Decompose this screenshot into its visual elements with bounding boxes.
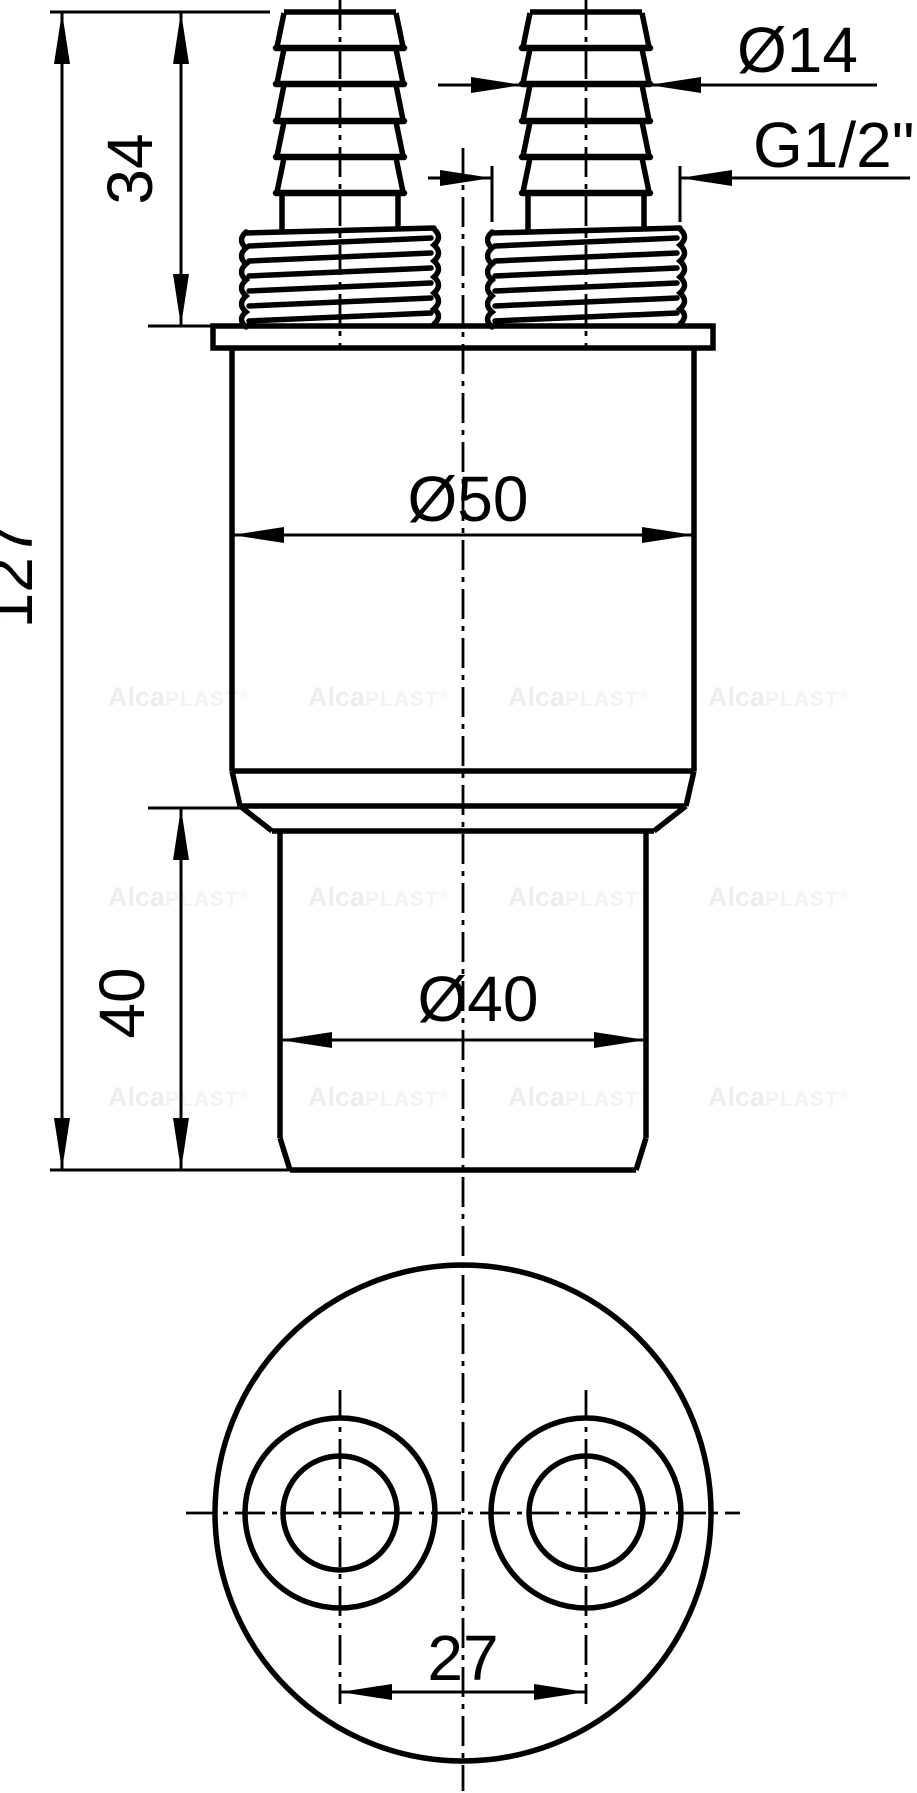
watermark: AlcaPLAST® [508,1082,648,1112]
watermark-grid: AlcaPLAST® AlcaPLAST® AlcaPLAST® AlcaPLA… [108,682,848,1112]
barb-side-left [277,13,284,192]
dim-label-outlet-height: 40 [86,967,158,1038]
watermark: AlcaPLAST® [308,682,448,712]
watermark: AlcaPLAST® [508,682,648,712]
dim-label-port-spacing: 27 [427,1622,498,1694]
dim-label-barb-diameter: Ø14 [737,14,858,86]
watermark: AlcaPLAST® [108,682,248,712]
dim-label-body-diameter: Ø50 [408,463,529,535]
dim-label-connector-height: 34 [94,133,166,204]
watermark: AlcaPLAST® [508,882,648,912]
watermark: AlcaPLAST® [108,1082,248,1112]
dimensions: Ø14 G1/2" 34 127 Ø50 40 Ø40 27 [0,12,914,1694]
watermark: AlcaPLAST® [308,882,448,912]
barb-side-left [523,13,530,192]
watermark: AlcaPLAST® [708,1082,848,1112]
dim-label-thread-size: G1/2" [753,109,914,181]
technical-drawing-page: AlcaPLAST® AlcaPLAST® AlcaPLAST® AlcaPLA… [0,0,917,1793]
dim-label-outlet-diameter: Ø40 [418,963,539,1035]
barb-side-right [642,13,649,192]
watermark: AlcaPLAST® [708,682,848,712]
dim-label-overall-height: 127 [0,522,46,629]
barb-side-right [396,13,403,192]
technical-drawing-canvas: AlcaPLAST® AlcaPLAST® AlcaPLAST® AlcaPLA… [0,0,917,1793]
watermark: AlcaPLAST® [308,1082,448,1112]
watermark: AlcaPLAST® [108,882,248,912]
watermark: AlcaPLAST® [708,882,848,912]
